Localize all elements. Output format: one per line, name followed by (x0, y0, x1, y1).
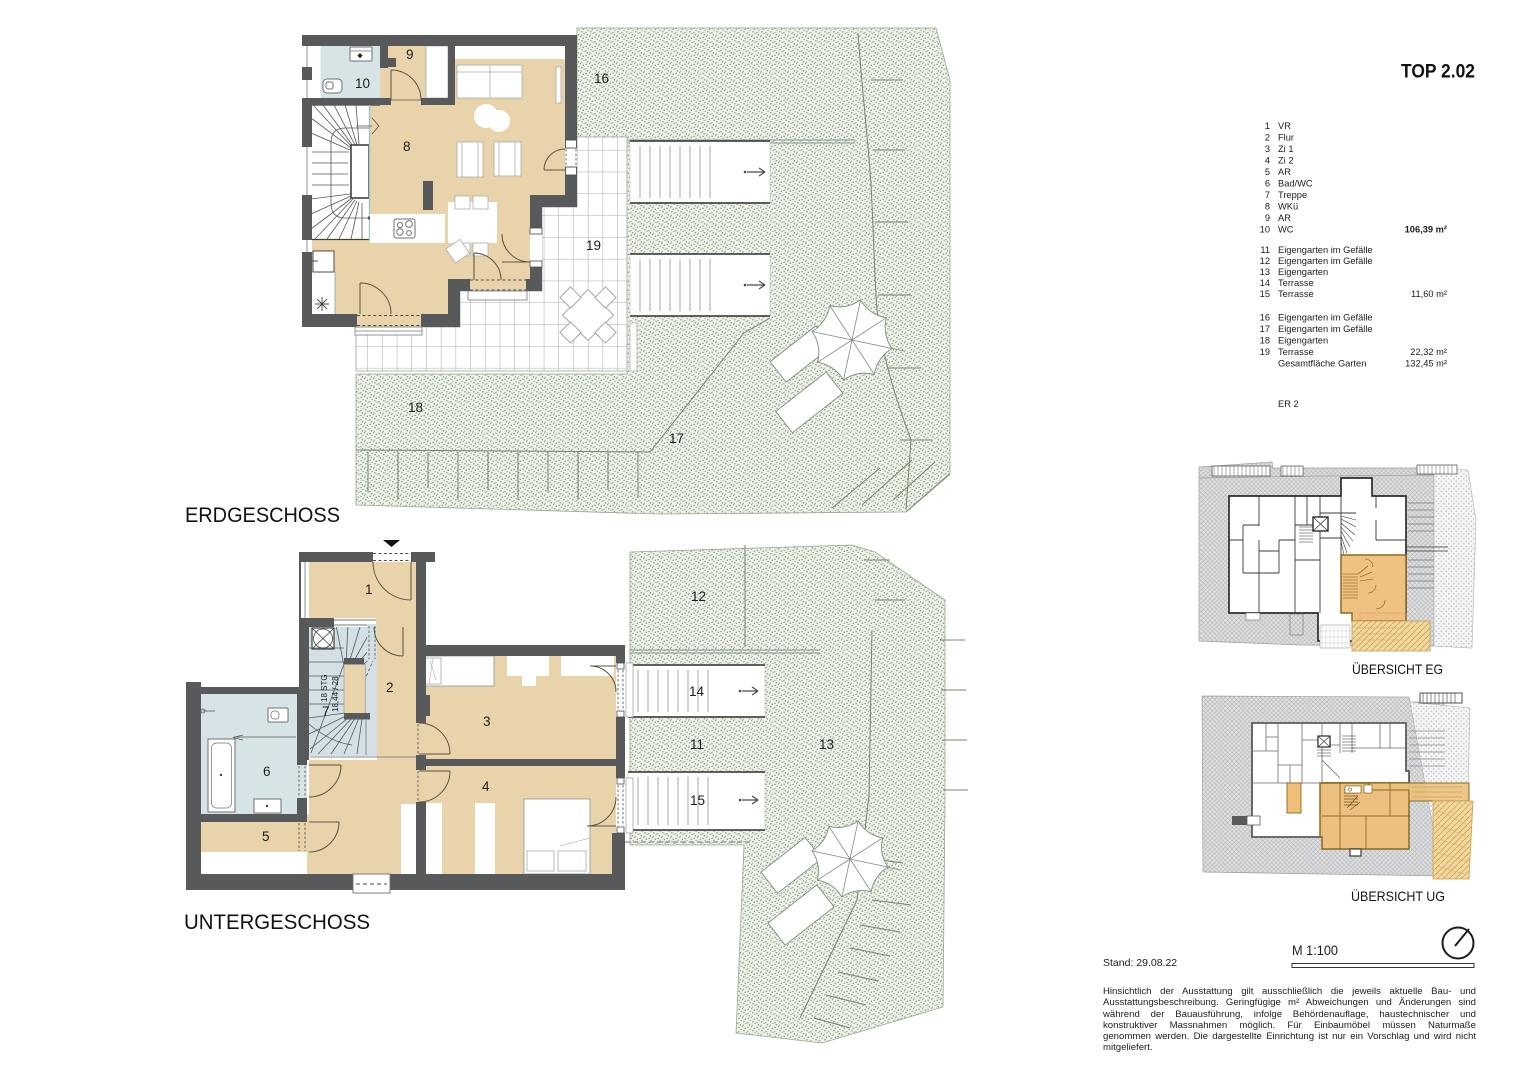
svg-text:3: 3 (1265, 144, 1270, 154)
svg-text:VR: VR (1278, 121, 1291, 131)
svg-text:Eigengarten im Gefälle: Eigengarten im Gefälle (1278, 256, 1373, 266)
svg-text:7: 7 (1265, 190, 1270, 200)
svg-text:6: 6 (1265, 179, 1270, 189)
svg-text:Bad/WC: Bad/WC (1278, 179, 1313, 189)
svg-text:10: 10 (355, 76, 370, 91)
svg-text:2: 2 (386, 680, 394, 695)
svg-text:Treppe: Treppe (1278, 190, 1307, 200)
svg-text:Zi 2: Zi 2 (1278, 156, 1294, 166)
svg-text:Zi 1: Zi 1 (1278, 144, 1294, 154)
svg-text:12: 12 (1260, 256, 1270, 266)
svg-text:Eigengarten: Eigengarten (1278, 267, 1328, 277)
svg-text:10: 10 (1260, 225, 1270, 235)
svg-text:9: 9 (1265, 213, 1270, 223)
svg-text:Stand: 29.08.22: Stand: 29.08.22 (1103, 957, 1177, 969)
svg-text:19: 19 (1260, 347, 1270, 357)
svg-text:Eigengarten im Gefälle: Eigengarten im Gefälle (1278, 313, 1373, 323)
svg-text:17: 17 (1260, 324, 1270, 334)
svg-text:Flur: Flur (1278, 133, 1294, 143)
svg-text:Terrasse: Terrasse (1278, 278, 1314, 288)
svg-text:8: 8 (403, 139, 411, 154)
svg-text:ERDGESCHOSS: ERDGESCHOSS (185, 504, 340, 527)
svg-text:ER 2: ER 2 (1278, 399, 1299, 409)
svg-text:1: 1 (365, 582, 373, 597)
svg-text:Gesamtfläche Garten: Gesamtfläche Garten (1278, 359, 1366, 369)
svg-text:Terrasse: Terrasse (1278, 347, 1314, 357)
svg-text:WC: WC (1278, 225, 1294, 235)
svg-text:18: 18 (408, 400, 423, 415)
svg-text:14: 14 (1260, 278, 1270, 288)
svg-text:11: 11 (1260, 245, 1270, 255)
svg-text:5: 5 (262, 829, 270, 844)
svg-text:18 STG: 18 STG (320, 674, 329, 702)
svg-text:AR: AR (1278, 213, 1291, 223)
svg-text:1: 1 (1265, 121, 1270, 131)
svg-text:18: 18 (1260, 336, 1270, 346)
svg-text:6: 6 (263, 764, 271, 779)
svg-text:132,45 m²: 132,45 m² (1405, 359, 1447, 369)
svg-text:14: 14 (689, 684, 705, 699)
svg-text:22,32 m²: 22,32 m² (1410, 347, 1447, 357)
svg-text:17: 17 (669, 431, 684, 446)
svg-text:4: 4 (482, 779, 490, 794)
svg-text:Eigengarten im Gefälle: Eigengarten im Gefälle (1278, 245, 1373, 255)
svg-text:11,60 m²: 11,60 m² (1411, 289, 1447, 299)
svg-text:4: 4 (1265, 156, 1270, 166)
svg-text:Eigengarten im Gefälle: Eigengarten im Gefälle (1278, 324, 1373, 334)
svg-text:106,39 m²: 106,39 m² (1405, 225, 1447, 235)
svg-text:TOP 2.02: TOP 2.02 (1401, 61, 1475, 83)
svg-text:7: 7 (322, 704, 330, 719)
svg-text:3: 3 (483, 714, 491, 729)
svg-text:UNTERGESCHOSS: UNTERGESCHOSS (184, 911, 370, 934)
svg-text:Eigengarten: Eigengarten (1278, 336, 1328, 346)
svg-text:11: 11 (690, 737, 704, 752)
svg-text:15: 15 (1260, 289, 1270, 299)
svg-text:WKü: WKü (1278, 202, 1298, 212)
svg-text:19: 19 (586, 238, 601, 253)
svg-text:13: 13 (1260, 267, 1270, 277)
svg-text:2: 2 (1265, 133, 1270, 143)
svg-text:15: 15 (690, 793, 705, 808)
svg-text:8: 8 (1265, 202, 1270, 212)
svg-text:M 1:100: M 1:100 (1292, 942, 1338, 958)
svg-text:5: 5 (1265, 167, 1270, 177)
svg-text:18,44 / 28: 18,44 / 28 (331, 676, 340, 712)
svg-text:AR: AR (1278, 167, 1291, 177)
svg-text:9: 9 (406, 47, 414, 62)
svg-text:12: 12 (691, 589, 706, 604)
svg-text:16: 16 (594, 71, 609, 86)
svg-text:Terrasse: Terrasse (1278, 289, 1314, 299)
svg-text:16: 16 (1260, 313, 1270, 323)
svg-text:13: 13 (819, 737, 834, 752)
svg-text:ÜBERSICHT EG: ÜBERSICHT EG (1352, 660, 1443, 677)
svg-text:ÜBERSICHT UG: ÜBERSICHT UG (1351, 887, 1445, 904)
